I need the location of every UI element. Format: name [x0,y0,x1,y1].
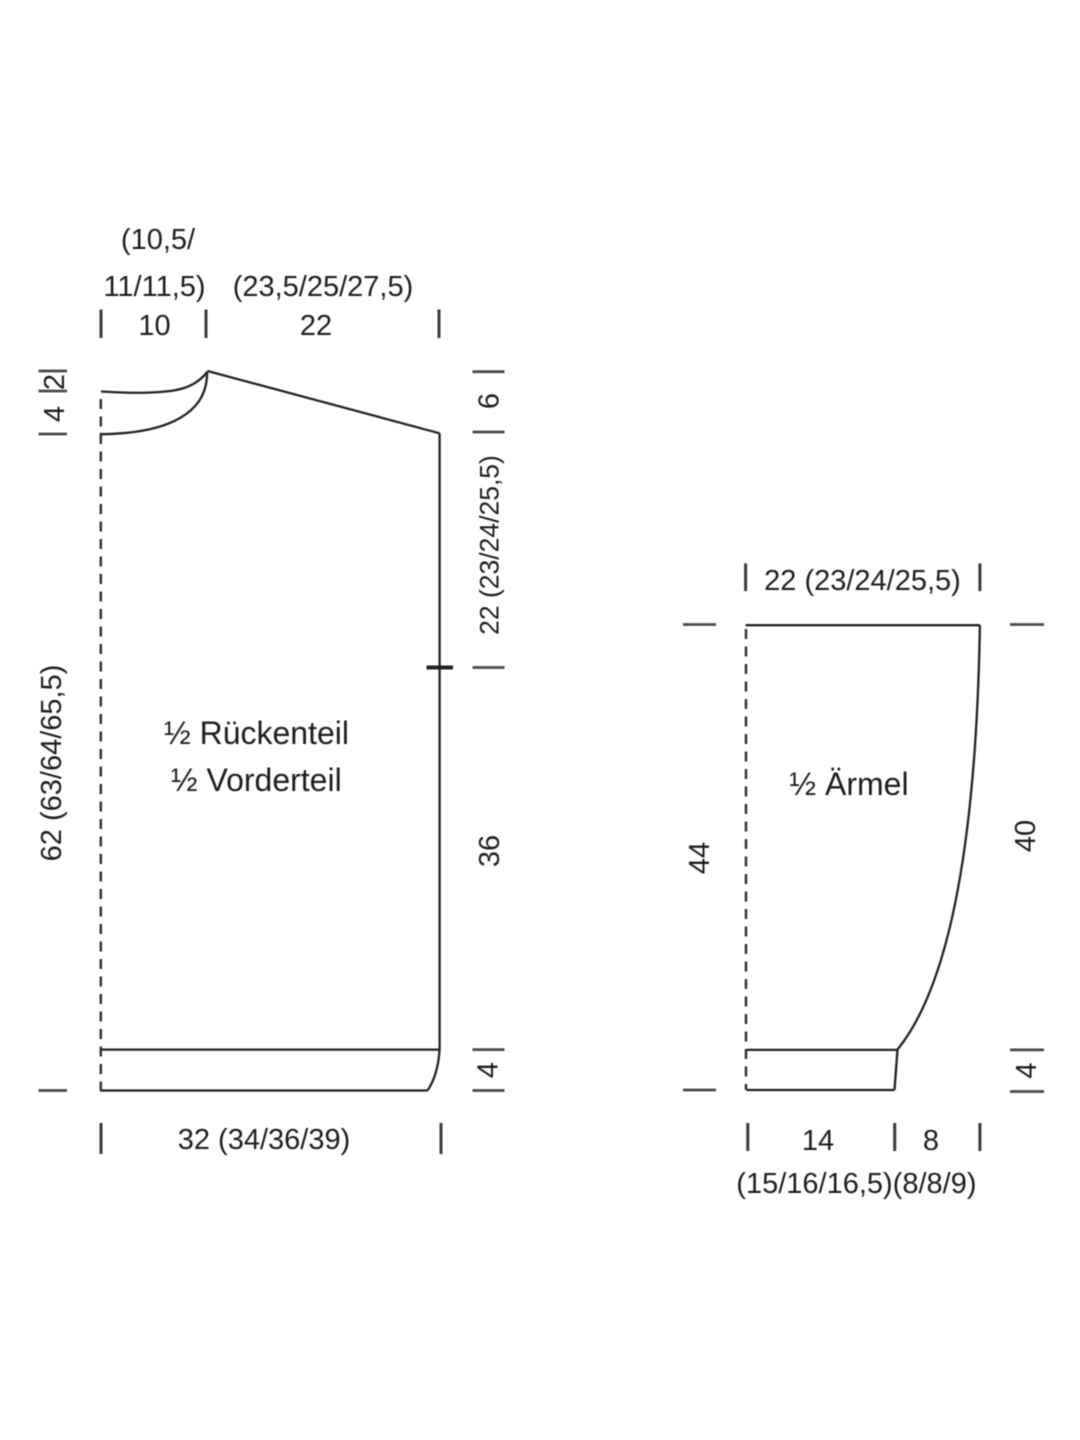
svg-text:½ Rückenteil: ½ Rückenteil [164,715,349,751]
svg-text:(10,5/: (10,5/ [121,224,196,256]
svg-text:2: 2 [39,374,71,390]
svg-text:½ Vorderteil: ½ Vorderteil [171,762,342,798]
svg-text:6: 6 [474,393,506,409]
svg-text:8: 8 [923,1125,939,1157]
svg-text:½ Ärmel: ½ Ärmel [789,766,908,802]
svg-text:32 (34/36/39): 32 (34/36/39) [178,1124,351,1156]
svg-text:40: 40 [1010,820,1042,852]
svg-text:10: 10 [138,310,170,342]
svg-text:22 (23/24/25,5): 22 (23/24/25,5) [764,565,961,597]
svg-text:4: 4 [39,406,71,422]
svg-text:44: 44 [684,842,716,874]
svg-text:36: 36 [474,835,506,867]
svg-text:(23,5/25/27,5): (23,5/25/27,5) [233,271,414,303]
svg-text:14: 14 [802,1125,834,1157]
svg-text:11/11,5): 11/11,5) [103,271,205,303]
svg-text:62 (63/64/65,5): 62 (63/64/65,5) [36,665,68,862]
svg-text:22 (23/24/25,5): 22 (23/24/25,5) [475,455,505,635]
svg-text:22: 22 [300,310,332,342]
svg-text:(15/16/16,5)(8/8/9): (15/16/16,5)(8/8/9) [736,1168,976,1200]
svg-text:4: 4 [1011,1062,1043,1078]
svg-text:4: 4 [473,1062,505,1078]
